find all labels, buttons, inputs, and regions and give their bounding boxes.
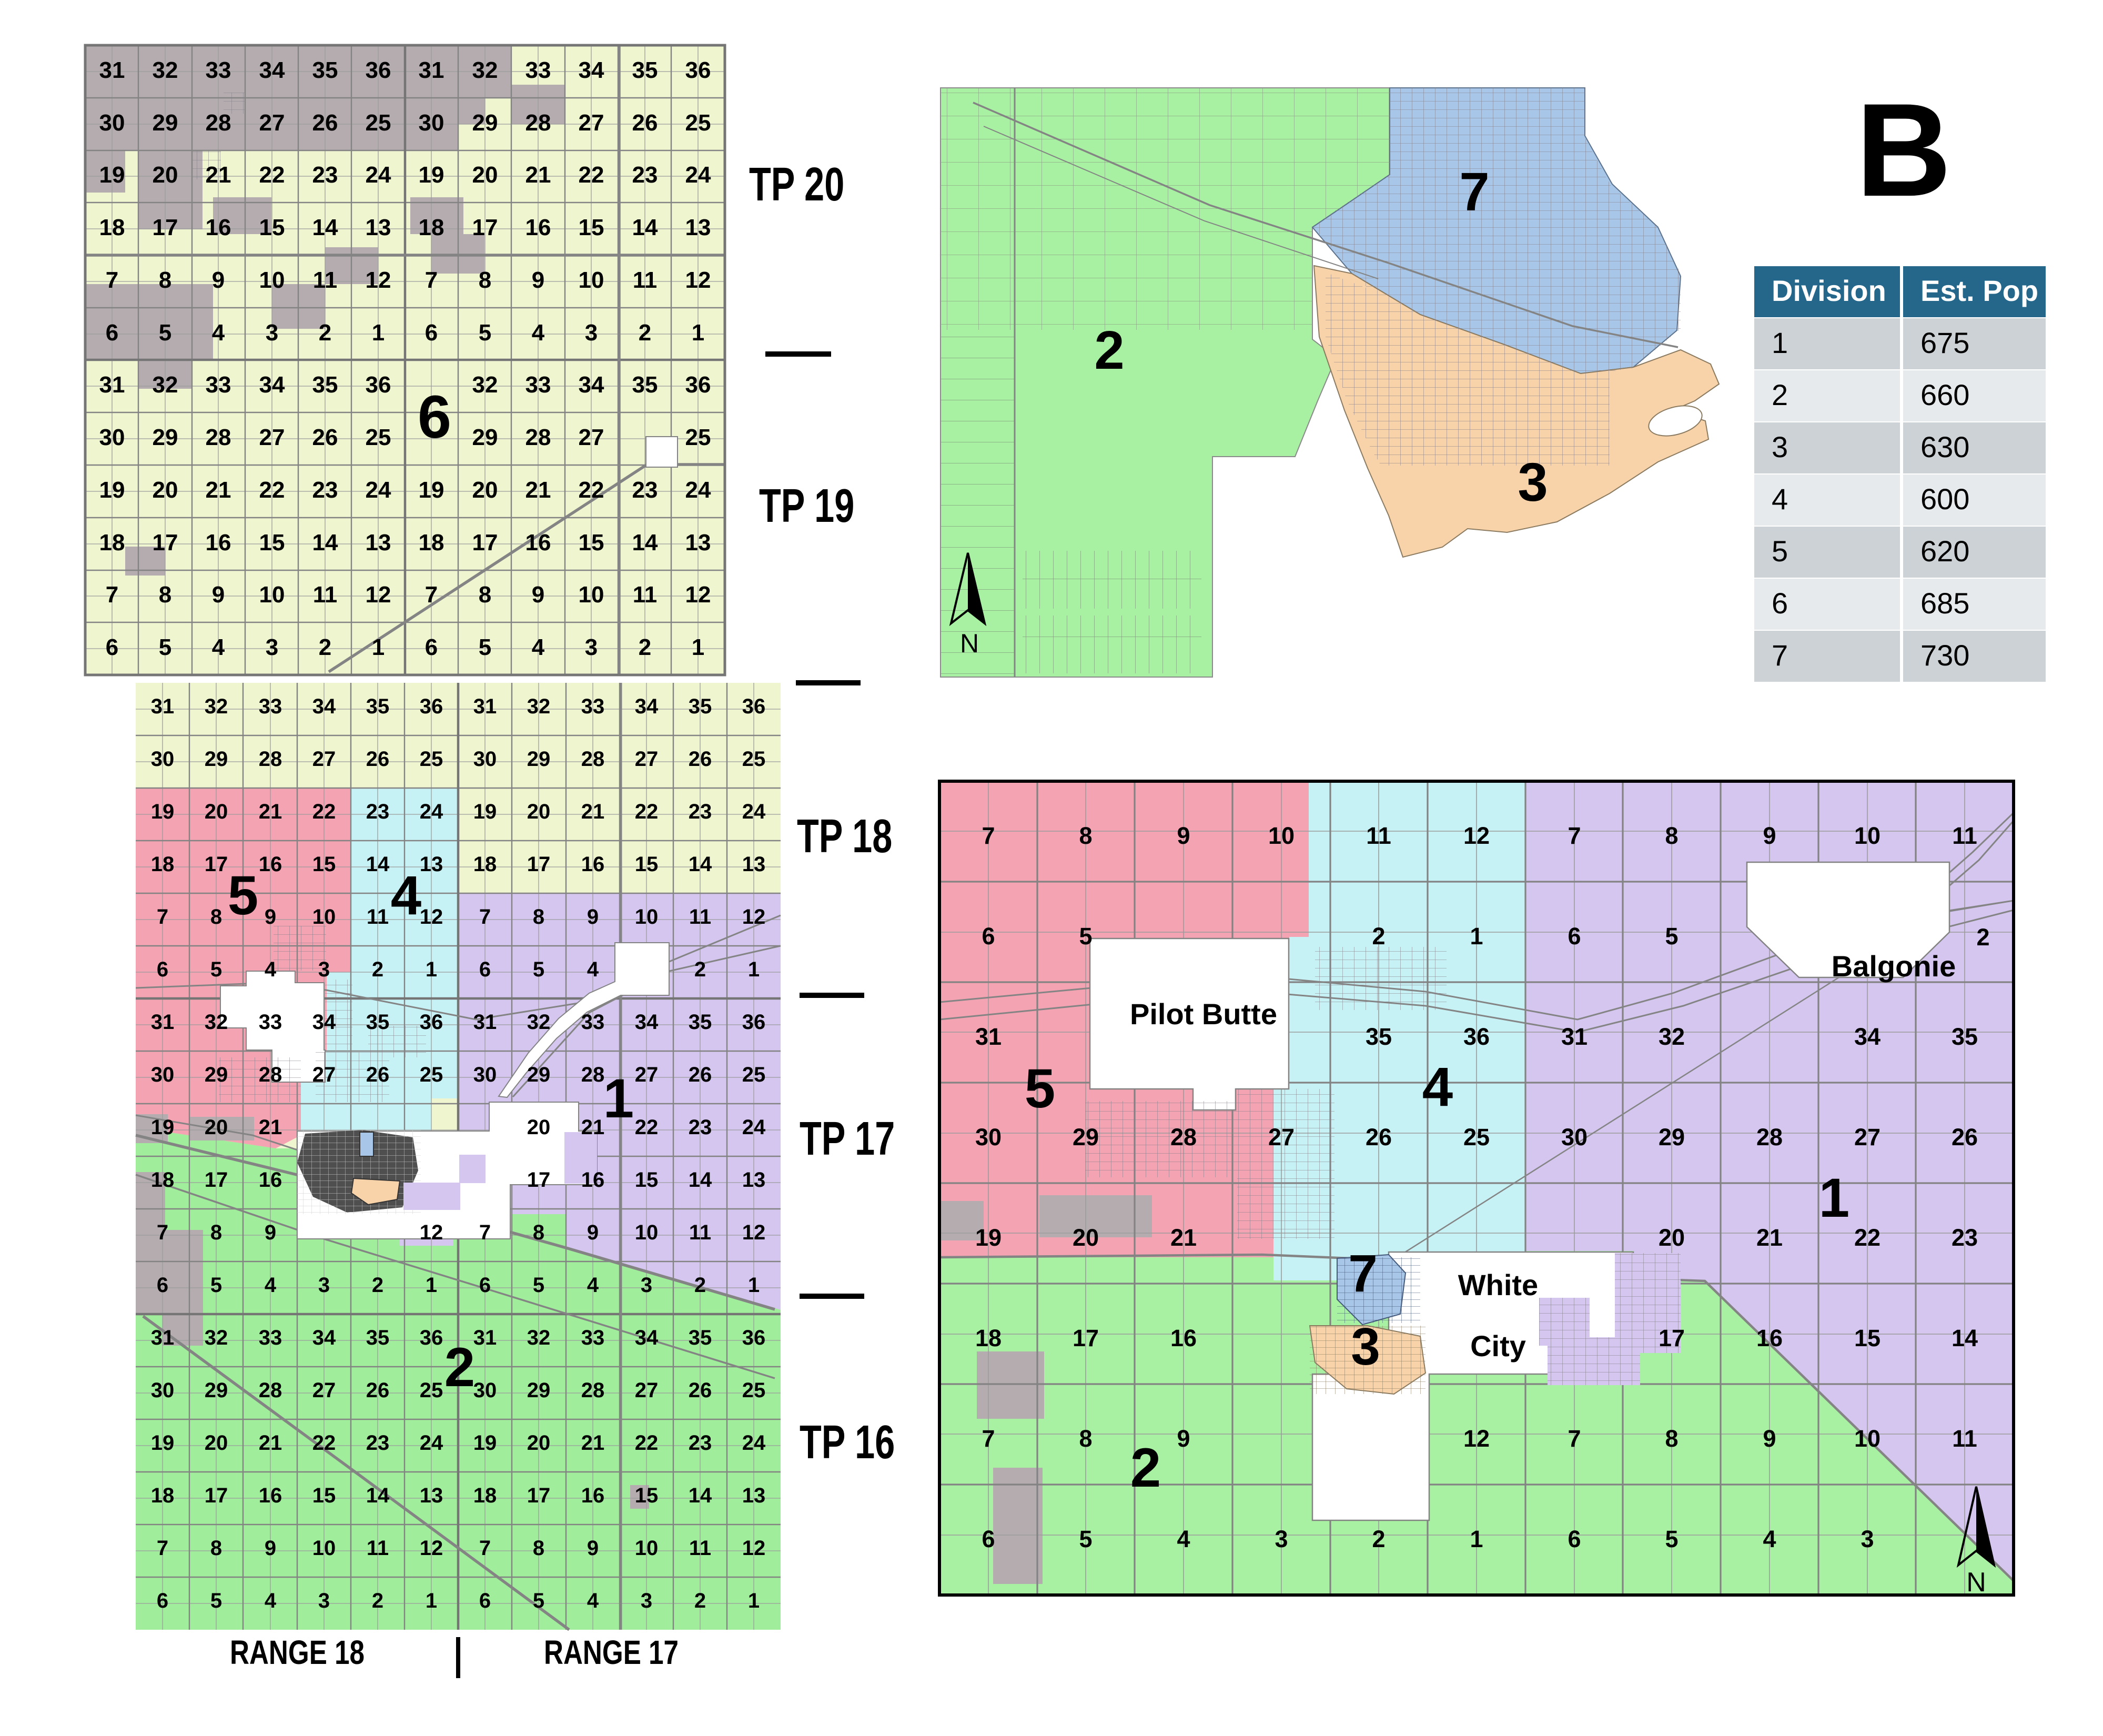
svg-text:12: 12	[742, 905, 766, 928]
svg-text:25: 25	[420, 1379, 443, 1402]
svg-text:9: 9	[1177, 1425, 1190, 1452]
svg-text:4: 4	[1422, 1056, 1453, 1118]
svg-text:10: 10	[1854, 1425, 1880, 1452]
svg-text:20: 20	[205, 1116, 228, 1139]
svg-text:31: 31	[99, 372, 125, 398]
svg-text:4: 4	[1772, 482, 1788, 516]
svg-text:15: 15	[635, 1484, 659, 1507]
svg-text:5: 5	[210, 1589, 222, 1612]
svg-text:36: 36	[420, 695, 443, 718]
svg-text:36: 36	[366, 372, 391, 398]
svg-text:31: 31	[975, 1023, 1002, 1050]
svg-text:31: 31	[419, 57, 444, 83]
svg-text:11: 11	[633, 582, 658, 608]
svg-text:2: 2	[639, 320, 651, 346]
svg-text:18: 18	[151, 1484, 175, 1507]
svg-text:1: 1	[1819, 1167, 1849, 1229]
svg-text:20: 20	[527, 1116, 551, 1139]
svg-text:1: 1	[372, 634, 385, 660]
svg-text:36: 36	[420, 1326, 443, 1349]
svg-text:11: 11	[1952, 1425, 1977, 1452]
svg-text:17: 17	[472, 530, 498, 556]
svg-text:8: 8	[210, 905, 222, 928]
svg-text:21: 21	[581, 800, 605, 823]
svg-text:660: 660	[1920, 378, 1969, 411]
svg-text:17: 17	[205, 1168, 228, 1192]
svg-text:23: 23	[689, 1431, 712, 1455]
svg-text:6: 6	[479, 1589, 491, 1612]
svg-text:36: 36	[742, 1326, 766, 1349]
svg-text:36: 36	[366, 57, 391, 83]
svg-text:11: 11	[633, 267, 658, 293]
svg-text:7: 7	[157, 1221, 168, 1244]
svg-text:3: 3	[318, 1274, 330, 1297]
svg-text:12: 12	[420, 1537, 443, 1560]
svg-text:15: 15	[635, 853, 659, 876]
svg-text:7: 7	[425, 267, 438, 293]
svg-text:17: 17	[1659, 1325, 1685, 1351]
svg-text:10: 10	[1854, 822, 1880, 849]
svg-text:26: 26	[1952, 1124, 1978, 1150]
svg-text:6: 6	[1772, 587, 1788, 620]
svg-text:32: 32	[527, 1011, 551, 1034]
svg-text:29: 29	[472, 425, 498, 450]
svg-text:10: 10	[635, 1221, 659, 1244]
svg-text:35: 35	[366, 1326, 390, 1349]
svg-text:12: 12	[742, 1221, 766, 1244]
svg-text:2: 2	[1372, 1526, 1385, 1552]
svg-text:15: 15	[259, 530, 285, 556]
svg-text:36: 36	[685, 57, 711, 83]
svg-text:36: 36	[1463, 1023, 1490, 1050]
svg-text:28: 28	[259, 748, 282, 771]
svg-text:34: 34	[312, 1326, 336, 1349]
svg-text:24: 24	[366, 477, 391, 503]
svg-text:RANGE 18: RANGE 18	[230, 1634, 365, 1672]
svg-text:35: 35	[689, 1326, 712, 1349]
svg-text:TP 20: TP 20	[749, 158, 844, 210]
svg-text:15: 15	[312, 853, 336, 876]
svg-text:26: 26	[366, 1063, 390, 1086]
svg-text:2: 2	[1976, 924, 1989, 951]
svg-text:4: 4	[1177, 1526, 1190, 1552]
svg-text:29: 29	[1659, 1124, 1685, 1150]
svg-text:2: 2	[372, 1274, 383, 1297]
svg-text:20: 20	[153, 477, 178, 503]
svg-text:4: 4	[587, 958, 599, 981]
svg-text:19: 19	[975, 1224, 1002, 1251]
svg-text:9: 9	[1177, 822, 1190, 849]
svg-text:9: 9	[532, 582, 544, 608]
svg-text:15: 15	[259, 215, 285, 240]
svg-text:9: 9	[587, 1537, 599, 1560]
svg-text:11: 11	[313, 267, 338, 293]
svg-text:1: 1	[426, 1589, 437, 1612]
svg-text:21: 21	[259, 1116, 282, 1139]
svg-text:11: 11	[1366, 822, 1391, 849]
svg-text:3: 3	[585, 634, 598, 660]
svg-text:10: 10	[259, 582, 285, 608]
svg-text:33: 33	[259, 695, 282, 718]
svg-text:10: 10	[1268, 822, 1295, 849]
svg-text:26: 26	[1366, 1124, 1392, 1150]
svg-text:21: 21	[581, 1431, 605, 1455]
svg-text:23: 23	[689, 800, 712, 823]
svg-text:5: 5	[479, 634, 491, 660]
svg-text:32: 32	[205, 1326, 228, 1349]
svg-text:26: 26	[689, 1379, 712, 1402]
svg-text:28: 28	[206, 110, 231, 136]
svg-text:16: 16	[581, 1168, 605, 1192]
svg-text:29: 29	[527, 1379, 551, 1402]
svg-text:5: 5	[159, 634, 171, 660]
svg-text:5: 5	[210, 958, 222, 981]
svg-text:35: 35	[312, 372, 338, 398]
svg-text:9: 9	[587, 905, 599, 928]
svg-text:35: 35	[632, 57, 658, 83]
svg-text:17: 17	[472, 215, 498, 240]
svg-text:36: 36	[742, 1011, 766, 1034]
svg-text:22: 22	[635, 800, 659, 823]
svg-text:17: 17	[153, 530, 178, 556]
svg-text:14: 14	[1952, 1325, 1978, 1351]
svg-text:14: 14	[366, 1484, 390, 1507]
svg-text:12: 12	[742, 1537, 766, 1560]
svg-text:Division: Division	[1772, 274, 1886, 307]
svg-text:B: B	[1856, 76, 1952, 224]
svg-text:28: 28	[581, 1379, 605, 1402]
svg-text:1: 1	[1470, 923, 1483, 950]
svg-text:22: 22	[259, 162, 285, 188]
svg-text:31: 31	[473, 1011, 497, 1034]
svg-text:27: 27	[312, 1063, 336, 1086]
svg-text:30: 30	[151, 748, 175, 771]
svg-text:22: 22	[259, 477, 285, 503]
svg-text:4: 4	[587, 1274, 599, 1297]
svg-text:24: 24	[685, 162, 711, 188]
svg-text:9: 9	[212, 582, 225, 608]
svg-text:28: 28	[525, 110, 551, 136]
svg-text:27: 27	[1268, 1124, 1295, 1150]
svg-text:1: 1	[426, 1274, 437, 1297]
svg-text:13: 13	[742, 853, 766, 876]
svg-text:27: 27	[635, 1379, 659, 1402]
svg-text:6: 6	[106, 634, 118, 660]
svg-text:33: 33	[581, 695, 605, 718]
svg-text:5: 5	[228, 865, 258, 926]
svg-text:16: 16	[206, 530, 231, 556]
svg-text:22: 22	[312, 800, 336, 823]
svg-text:12: 12	[1463, 822, 1490, 849]
svg-text:8: 8	[533, 1537, 544, 1560]
svg-text:34: 34	[635, 1326, 659, 1349]
svg-text:25: 25	[685, 110, 711, 136]
svg-text:20: 20	[1659, 1224, 1685, 1251]
svg-text:6: 6	[157, 958, 168, 981]
svg-text:24: 24	[742, 800, 766, 823]
svg-text:TP 17: TP 17	[800, 1112, 895, 1165]
svg-text:21: 21	[259, 800, 282, 823]
svg-text:28: 28	[259, 1379, 282, 1402]
svg-text:5: 5	[533, 958, 544, 981]
svg-text:15: 15	[312, 1484, 336, 1507]
svg-text:13: 13	[366, 530, 391, 556]
svg-text:4: 4	[532, 634, 545, 660]
svg-text:19: 19	[419, 477, 444, 503]
svg-text:2: 2	[319, 634, 331, 660]
svg-text:12: 12	[366, 582, 391, 608]
svg-text:25: 25	[1463, 1124, 1490, 1150]
svg-text:2: 2	[1094, 320, 1124, 380]
svg-text:31: 31	[473, 1326, 497, 1349]
svg-text:35: 35	[689, 1011, 712, 1034]
svg-text:13: 13	[420, 853, 443, 876]
svg-text:29: 29	[205, 748, 228, 771]
svg-text:6: 6	[982, 1526, 995, 1552]
svg-text:8: 8	[1079, 1425, 1092, 1452]
svg-text:7: 7	[106, 582, 118, 608]
svg-text:2: 2	[694, 1589, 706, 1612]
svg-text:33: 33	[581, 1326, 605, 1349]
svg-text:5: 5	[1772, 534, 1788, 568]
svg-text:28: 28	[581, 1063, 605, 1086]
svg-text:RANGE 17: RANGE 17	[544, 1634, 679, 1672]
svg-text:16: 16	[525, 215, 551, 240]
svg-text:12: 12	[366, 267, 391, 293]
svg-text:1: 1	[603, 1068, 634, 1129]
svg-text:7: 7	[982, 822, 995, 849]
svg-text:9: 9	[1763, 1425, 1776, 1452]
svg-text:13: 13	[742, 1484, 766, 1507]
svg-text:N: N	[960, 629, 979, 658]
svg-text:24: 24	[742, 1116, 766, 1139]
svg-text:22: 22	[635, 1116, 659, 1139]
svg-text:23: 23	[366, 800, 390, 823]
svg-text:18: 18	[419, 530, 444, 556]
svg-text:2: 2	[639, 634, 651, 660]
svg-text:27: 27	[635, 748, 659, 771]
svg-text:29: 29	[153, 425, 178, 450]
svg-text:15: 15	[579, 215, 604, 240]
svg-text:34: 34	[579, 57, 604, 83]
svg-text:1: 1	[748, 958, 760, 981]
svg-text:17: 17	[1073, 1325, 1099, 1351]
svg-text:14: 14	[366, 853, 390, 876]
svg-text:14: 14	[689, 1484, 712, 1507]
svg-text:18: 18	[99, 215, 125, 240]
svg-text:N: N	[1966, 1567, 1986, 1598]
svg-text:7: 7	[157, 1537, 168, 1560]
svg-text:36: 36	[420, 1011, 443, 1034]
svg-text:36: 36	[742, 695, 766, 718]
svg-text:28: 28	[206, 425, 231, 450]
svg-text:32: 32	[205, 1011, 228, 1034]
svg-text:33: 33	[259, 1326, 282, 1349]
svg-text:15: 15	[1854, 1325, 1880, 1351]
svg-text:6: 6	[425, 320, 438, 346]
svg-text:5: 5	[159, 320, 171, 346]
svg-text:15: 15	[579, 530, 604, 556]
svg-text:8: 8	[533, 1221, 544, 1244]
svg-text:35: 35	[1952, 1023, 1978, 1050]
svg-text:6: 6	[418, 383, 451, 451]
svg-text:14: 14	[312, 530, 338, 556]
svg-text:33: 33	[581, 1011, 605, 1034]
svg-text:25: 25	[366, 425, 391, 450]
svg-text:4: 4	[212, 320, 225, 346]
svg-text:13: 13	[742, 1168, 766, 1192]
svg-text:30: 30	[1561, 1124, 1588, 1150]
svg-text:20: 20	[205, 800, 228, 823]
svg-text:6: 6	[425, 634, 438, 660]
svg-text:5: 5	[1665, 1526, 1678, 1552]
svg-text:32: 32	[527, 1326, 551, 1349]
svg-text:City: City	[1470, 1329, 1526, 1362]
svg-text:9: 9	[587, 1221, 599, 1244]
svg-text:26: 26	[366, 748, 390, 771]
svg-text:9: 9	[212, 267, 225, 293]
svg-text:28: 28	[525, 425, 551, 450]
svg-text:27: 27	[312, 1379, 336, 1402]
svg-text:5: 5	[1079, 1526, 1092, 1552]
svg-text:27: 27	[579, 425, 604, 450]
svg-text:White: White	[1458, 1268, 1538, 1301]
svg-text:4: 4	[265, 1274, 277, 1297]
svg-text:20: 20	[472, 162, 498, 188]
svg-text:730: 730	[1920, 639, 1969, 672]
svg-text:14: 14	[689, 1168, 712, 1192]
svg-text:3: 3	[266, 320, 278, 346]
svg-text:35: 35	[366, 1011, 390, 1034]
svg-text:31: 31	[151, 1326, 175, 1349]
svg-text:7: 7	[1772, 639, 1788, 672]
svg-text:9: 9	[265, 1537, 276, 1560]
svg-text:2: 2	[1772, 378, 1788, 411]
svg-text:4: 4	[212, 634, 225, 660]
svg-text:13: 13	[420, 1484, 443, 1507]
svg-text:23: 23	[312, 477, 338, 503]
svg-text:35: 35	[689, 695, 712, 718]
svg-text:7: 7	[1568, 1425, 1581, 1452]
svg-text:23: 23	[632, 162, 658, 188]
svg-text:25: 25	[742, 1379, 766, 1402]
svg-text:TP 16: TP 16	[800, 1416, 895, 1468]
svg-text:18: 18	[99, 530, 125, 556]
svg-text:8: 8	[1665, 822, 1678, 849]
svg-text:29: 29	[472, 110, 498, 136]
svg-text:32: 32	[472, 372, 498, 398]
svg-text:2: 2	[1130, 1437, 1161, 1499]
svg-text:5: 5	[210, 1274, 222, 1297]
svg-text:5: 5	[479, 320, 491, 346]
svg-text:4: 4	[265, 1589, 277, 1612]
svg-text:10: 10	[312, 905, 336, 928]
svg-text:26: 26	[366, 1379, 390, 1402]
svg-text:32: 32	[527, 695, 551, 718]
svg-text:7: 7	[982, 1425, 995, 1452]
svg-text:5: 5	[1665, 923, 1678, 950]
svg-text:3: 3	[318, 1589, 330, 1612]
svg-text:16: 16	[259, 1484, 282, 1507]
svg-text:Pilot Butte: Pilot Butte	[1130, 997, 1277, 1031]
svg-text:29: 29	[205, 1063, 228, 1086]
svg-text:28: 28	[259, 1063, 282, 1086]
svg-text:25: 25	[420, 1063, 443, 1086]
svg-text:9: 9	[265, 1221, 276, 1244]
svg-text:21: 21	[581, 1116, 605, 1139]
svg-text:30: 30	[151, 1063, 175, 1086]
svg-text:10: 10	[259, 267, 285, 293]
svg-text:11: 11	[1952, 822, 1977, 849]
svg-text:24: 24	[366, 162, 391, 188]
svg-text:33: 33	[525, 372, 551, 398]
svg-text:19: 19	[151, 800, 175, 823]
svg-text:8: 8	[479, 582, 491, 608]
svg-text:26: 26	[689, 1063, 712, 1086]
svg-text:16: 16	[206, 215, 231, 240]
svg-text:7: 7	[479, 905, 491, 928]
svg-text:Est. Pop: Est. Pop	[1920, 274, 2038, 307]
svg-text:685: 685	[1920, 587, 1969, 620]
svg-text:25: 25	[742, 748, 766, 771]
svg-text:14: 14	[632, 530, 658, 556]
svg-text:7: 7	[157, 905, 168, 928]
svg-text:18: 18	[151, 853, 175, 876]
svg-text:13: 13	[685, 215, 711, 240]
svg-text:35: 35	[366, 695, 390, 718]
svg-text:31: 31	[151, 1011, 175, 1034]
svg-text:8: 8	[210, 1221, 222, 1244]
svg-text:16: 16	[581, 1484, 605, 1507]
svg-text:30: 30	[99, 425, 125, 450]
svg-text:600: 600	[1920, 482, 1969, 516]
svg-text:27: 27	[635, 1063, 659, 1086]
svg-text:8: 8	[479, 267, 491, 293]
svg-text:10: 10	[635, 1537, 659, 1560]
svg-text:34: 34	[579, 372, 604, 398]
svg-text:21: 21	[525, 477, 551, 503]
svg-text:3: 3	[1861, 1526, 1874, 1552]
svg-text:26: 26	[312, 425, 338, 450]
svg-text:26: 26	[689, 748, 712, 771]
svg-text:5: 5	[533, 1589, 544, 1612]
svg-text:675: 675	[1920, 326, 1969, 359]
svg-text:21: 21	[259, 1431, 282, 1455]
svg-text:16: 16	[259, 853, 282, 876]
svg-text:3: 3	[318, 958, 330, 981]
svg-text:27: 27	[312, 748, 336, 771]
svg-text:19: 19	[419, 162, 444, 188]
svg-text:19: 19	[151, 1431, 175, 1455]
svg-text:4: 4	[587, 1589, 599, 1612]
svg-text:17: 17	[527, 853, 551, 876]
svg-text:17: 17	[205, 1484, 228, 1507]
svg-text:3: 3	[1351, 1317, 1380, 1376]
svg-text:24: 24	[420, 800, 443, 823]
svg-text:36: 36	[685, 372, 711, 398]
svg-text:21: 21	[1170, 1224, 1197, 1251]
svg-text:33: 33	[206, 372, 231, 398]
svg-text:30: 30	[473, 1063, 497, 1086]
svg-text:6: 6	[157, 1274, 168, 1297]
svg-text:4: 4	[265, 958, 277, 981]
svg-text:11: 11	[313, 582, 338, 608]
svg-text:7: 7	[479, 1221, 491, 1244]
svg-text:22: 22	[579, 477, 604, 503]
svg-text:29: 29	[527, 748, 551, 771]
svg-text:34: 34	[312, 1011, 336, 1034]
svg-text:22: 22	[579, 162, 604, 188]
